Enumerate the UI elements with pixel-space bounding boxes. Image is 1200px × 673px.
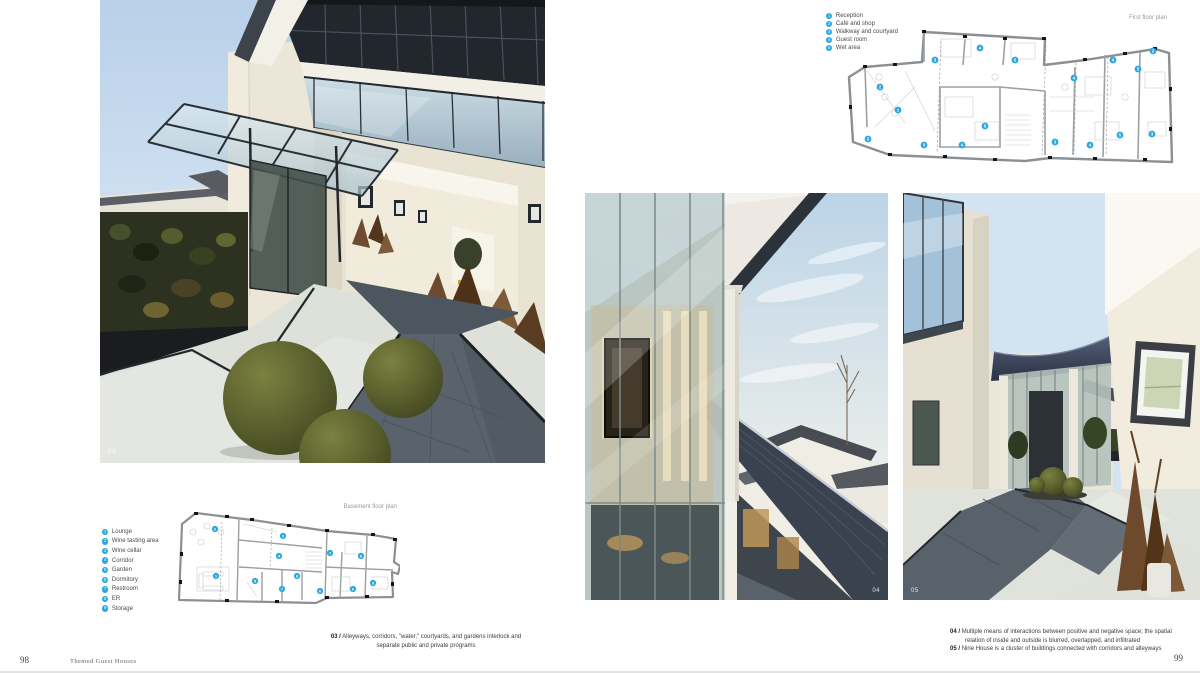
basement-legend: 1Lounge2Wine tasting area3Wine cellar4Co…: [102, 527, 159, 613]
photo-05-illustration: [903, 193, 1200, 600]
photo-number-05: 05: [911, 588, 919, 594]
legend-number-badge: 8: [102, 596, 108, 602]
legend-item: 1Reception: [826, 12, 898, 20]
legend-number-badge: 4: [102, 557, 108, 563]
photo-03-illustration: [100, 0, 545, 463]
photo-number-03: 03: [108, 449, 116, 455]
book-spread: 03 1Reception2Café and shop3Walkway and …: [0, 0, 1200, 673]
legend-label: Lounge: [112, 529, 132, 535]
caption-04-number: 04 /: [950, 629, 960, 635]
caption-04: 04 / Multiple means of interactions betw…: [950, 628, 1192, 645]
legend-label: Corridor: [112, 558, 134, 564]
photo-courtyard-walkway: 03: [100, 0, 545, 463]
legend-label: Storage: [112, 606, 133, 612]
photo-number-04: 04: [872, 588, 880, 594]
page-number-right: 99: [1174, 653, 1183, 663]
photo-window-roofscape: 04: [585, 193, 888, 600]
basement-plan-title: Basement floor plan: [267, 504, 397, 510]
legend-number-badge: 9: [102, 605, 108, 611]
legend-item: 1Lounge: [102, 527, 159, 537]
legend-number-badge: 3: [826, 29, 832, 35]
legend-number-badge: 5: [826, 45, 832, 51]
legend-item: 2Wine tasting area: [102, 537, 159, 547]
caption-03-text: Alleyways, corridors, "water," courtyard…: [342, 634, 521, 649]
legend-number-badge: 7: [102, 586, 108, 592]
caption-05-text: Nine House is a cluster of buildings con…: [962, 646, 1162, 652]
legend-number-badge: 2: [102, 538, 108, 544]
caption-04-text: Multiple means of interactions between p…: [962, 629, 1172, 644]
first-floor-plan-title: First floor plan: [1037, 15, 1167, 21]
legend-item: 4Corridor: [102, 556, 159, 566]
legend-number-badge: 5: [102, 567, 108, 573]
caption-03-number: 03 /: [331, 634, 341, 640]
legend-number-badge: 6: [102, 577, 108, 583]
legend-number-badge: 1: [102, 529, 108, 535]
first-floor-plan-drawing: 34521334534445523: [845, 27, 1175, 167]
legend-item: 6Dormitory: [102, 575, 159, 585]
legend-number-badge: 2: [826, 21, 832, 27]
legend-item: 9Storage: [102, 604, 159, 614]
legend-item: 3Wine cellar: [102, 546, 159, 556]
photo-alleyway-pavilion: 05: [903, 193, 1200, 600]
legend-number-badge: 4: [826, 37, 832, 43]
basement-plan-drawing: 231457867669: [177, 512, 400, 605]
captions-04-05: 04 / Multiple means of interactions betw…: [950, 628, 1192, 654]
legend-label: ER: [112, 596, 120, 602]
legend-label: Dormitory: [112, 577, 138, 583]
legend-label: Wine tasting area: [112, 538, 159, 544]
caption-05: 05 / Nine House is a cluster of building…: [950, 645, 1192, 654]
legend-item: 5Garden: [102, 565, 159, 575]
caption-05-number: 05 /: [950, 646, 960, 652]
legend-number-badge: 3: [102, 548, 108, 554]
legend-item: 7Restroom: [102, 585, 159, 595]
legend-item: 8ER: [102, 594, 159, 604]
legend-label: Restroom: [112, 586, 138, 592]
legend-label: Garden: [112, 567, 132, 573]
photo-04-illustration: [585, 193, 888, 600]
legend-label: Wine cellar: [112, 548, 142, 554]
legend-label: Reception: [836, 13, 863, 19]
caption-03: 03 / Alleyways, corridors, "water," cour…: [320, 633, 532, 650]
legend-number-badge: 1: [826, 13, 832, 19]
page-number-left: 98: [20, 655, 29, 665]
book-title: Themed Guest Houses: [70, 658, 136, 665]
